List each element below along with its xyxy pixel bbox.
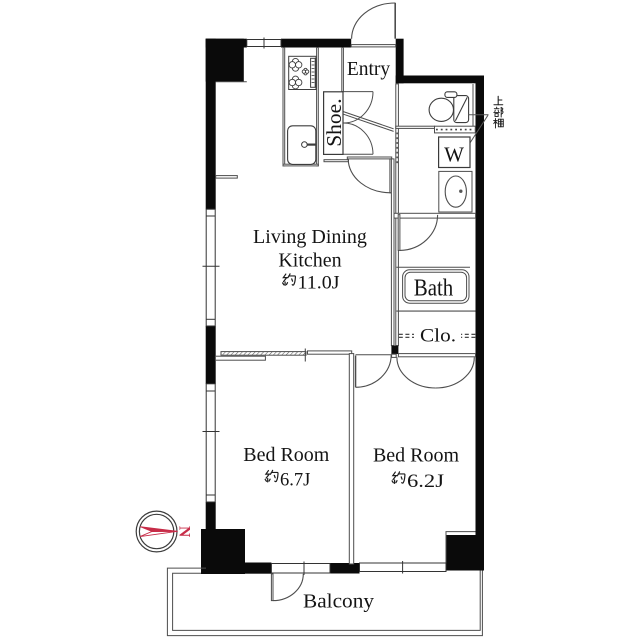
svg-text:Shoe.: Shoe. xyxy=(322,98,346,146)
svg-text:Balcony: Balcony xyxy=(303,591,374,613)
svg-text:N: N xyxy=(175,526,192,537)
svg-text:Bed Room: Bed Room xyxy=(373,445,460,467)
svg-text:Living Dining: Living Dining xyxy=(253,226,367,248)
svg-text:6.2J: 6.2J xyxy=(407,472,444,492)
svg-text:Kitchen: Kitchen xyxy=(278,250,341,272)
svg-text:Entry: Entry xyxy=(347,59,391,80)
svg-text:6.7J: 6.7J xyxy=(280,470,310,490)
svg-text:11.0J: 11.0J xyxy=(298,273,340,293)
svg-text:Clo.: Clo. xyxy=(420,326,456,347)
svg-text:Bath: Bath xyxy=(414,276,454,302)
svg-text:Bed Room: Bed Room xyxy=(243,444,330,466)
svg-text:W: W xyxy=(444,143,464,167)
